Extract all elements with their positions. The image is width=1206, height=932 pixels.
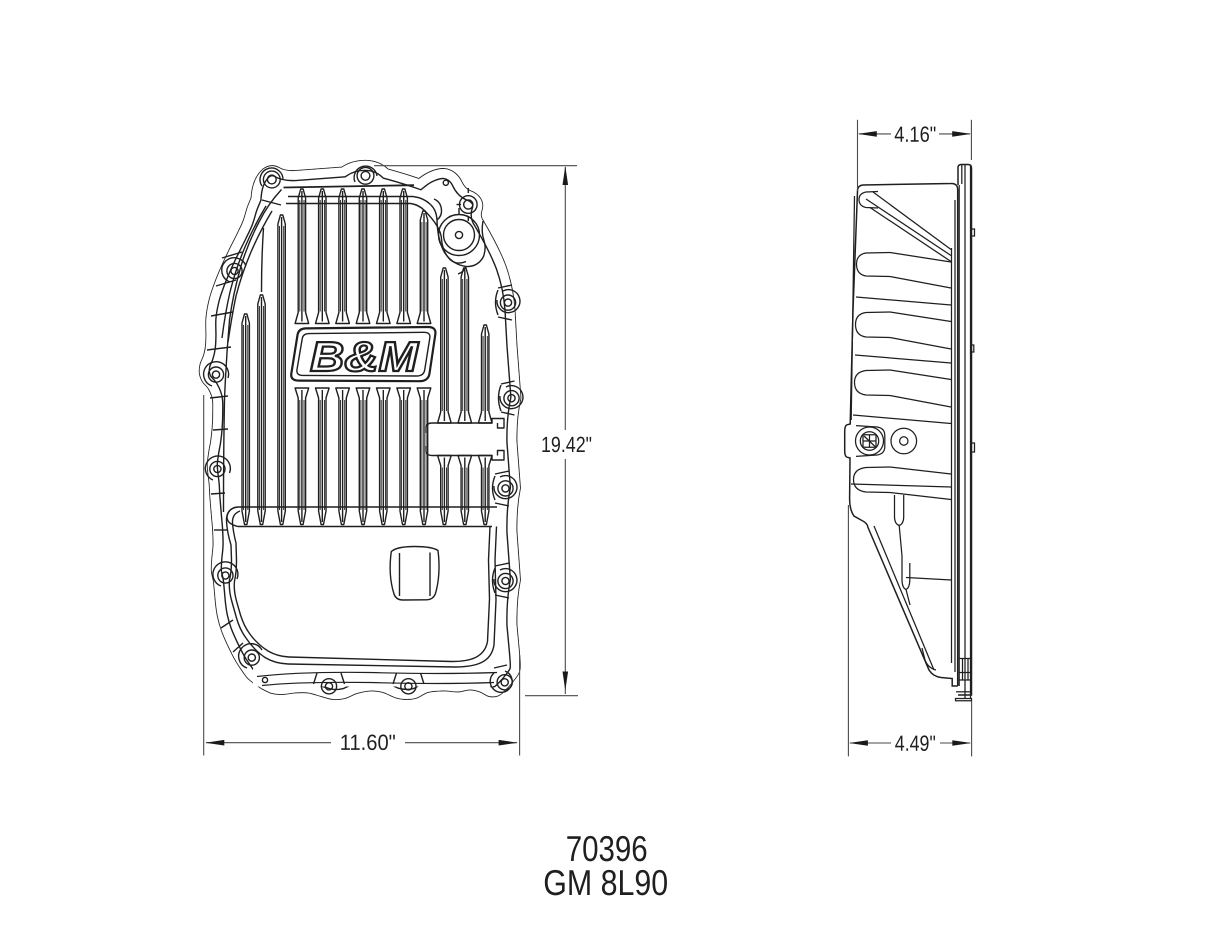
- svg-text:GM 8L90: GM 8L90: [543, 862, 668, 903]
- svg-text:4.49": 4.49": [895, 731, 936, 756]
- svg-text:11.60": 11.60": [340, 730, 396, 755]
- svg-text:4.16": 4.16": [894, 122, 936, 147]
- svg-text:19.42": 19.42": [541, 432, 592, 457]
- svg-text:B&M: B&M: [310, 333, 419, 380]
